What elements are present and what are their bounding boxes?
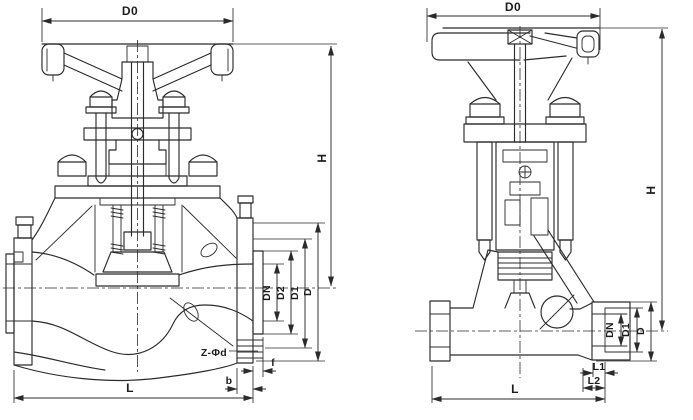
left-internals xyxy=(95,205,182,286)
right-handwheel xyxy=(432,28,600,64)
dim-label-d-left: D xyxy=(302,288,314,296)
dim-label-dn-left: DN xyxy=(261,285,273,301)
dim-label-l2: L2 xyxy=(588,375,601,387)
left-outlet-flange xyxy=(237,196,263,363)
dim-label-d0-right: D0 xyxy=(505,0,521,14)
dim-label-d0-left: D0 xyxy=(122,4,138,18)
dim-label-d1-left: D1 xyxy=(289,286,301,300)
dim-label-h-right: H xyxy=(644,185,658,194)
dim-label-dn-right: DN xyxy=(604,322,616,338)
dim-label-f: f xyxy=(271,357,275,369)
dim-label-d1-right: D1 xyxy=(620,323,632,337)
dim-label-h-left: H xyxy=(315,153,329,162)
left-valve-view: D0 H DN D2 D1 D Z-Φd xyxy=(3,4,337,403)
right-bellows-disc xyxy=(498,252,552,308)
valve-dimension-drawing: D0 H DN D2 D1 D Z-Φd xyxy=(0,0,693,420)
left-inlet-flange xyxy=(6,217,33,365)
dim-label-b: b xyxy=(226,375,233,387)
right-valve-view: D0 H DN D1 D L1 L2 xyxy=(415,0,668,403)
dim-label-l-right: L xyxy=(511,382,519,396)
dim-label-l-left: L xyxy=(126,381,134,395)
dim-label-d-right: D xyxy=(635,327,647,335)
dim-label-d2-left: D2 xyxy=(275,286,287,300)
dim-label-bolt-holes: Z-Φd xyxy=(201,347,227,359)
bolt-hole-section-lines xyxy=(237,340,263,358)
left-dimensions: D0 H DN D2 D1 D Z-Φd xyxy=(14,4,337,403)
drawing-canvas: D0 H DN D2 D1 D Z-Φd xyxy=(0,0,693,420)
dim-label-l1: L1 xyxy=(593,361,606,373)
right-yoke xyxy=(464,44,586,260)
